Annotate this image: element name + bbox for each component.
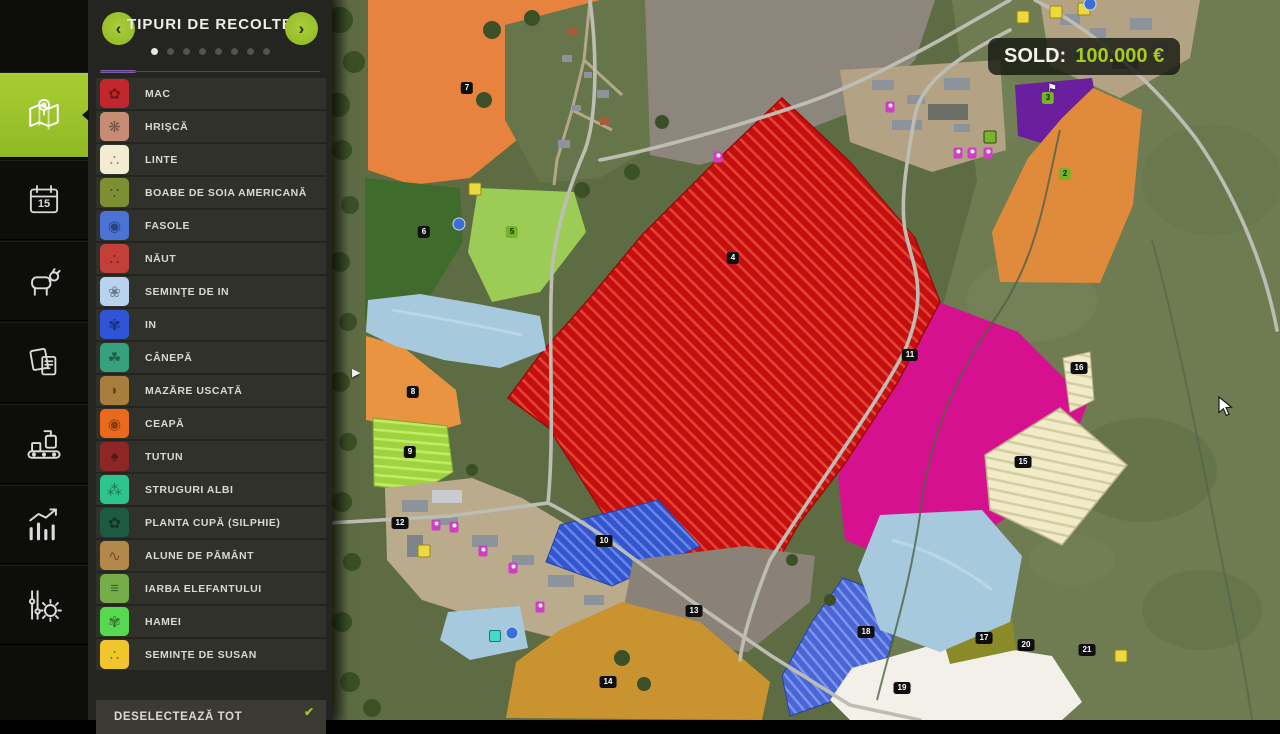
shop-marker-icon[interactable]: [1050, 6, 1063, 19]
crop-label: PLANTA CUPĂ (SILPHIE): [145, 517, 280, 529]
next-page-button[interactable]: ›: [285, 12, 318, 45]
shop-marker-icon[interactable]: [469, 183, 482, 196]
field-number-badge[interactable]: 6: [418, 226, 430, 238]
poi-marker-icon[interactable]: [453, 218, 466, 231]
crop-icon: ∵: [100, 178, 129, 207]
crop-label: FASOLE: [145, 220, 190, 232]
crop-label: SEMINŢE DE SUSAN: [145, 649, 257, 661]
crop-row[interactable]: ∴SEMINŢE DE SUSAN: [96, 639, 326, 670]
crop-icon: ∴: [100, 244, 129, 273]
person-marker-icon[interactable]: [450, 522, 459, 533]
pagination-dot[interactable]: [231, 48, 238, 55]
poi-marker-icon[interactable]: [489, 630, 501, 642]
crop-label: STRUGURI ALBI: [145, 484, 233, 496]
crop-label: IN: [145, 319, 157, 331]
pagination-dot[interactable]: [199, 48, 206, 55]
crop-row[interactable]: ≡IARBA ELEFANTULUI: [96, 573, 326, 604]
sidebar-item-animals[interactable]: [0, 241, 88, 321]
crop-row[interactable]: ✾HAMEI: [96, 606, 326, 637]
production-icon: [22, 422, 66, 466]
crop-icon: ≡: [100, 574, 129, 603]
sidebar-item-map[interactable]: [0, 72, 88, 158]
crop-types-panel: ‹ TIPURI DE RECOLTE › ✿MAC❋HRIŞCĂ∴LINTE∵…: [88, 0, 332, 720]
crop-row[interactable]: ♠TUTUN: [96, 441, 326, 472]
field-number-badge[interactable]: 11: [902, 349, 918, 361]
crop-label: CÂNEPĂ: [145, 352, 192, 364]
pagination-dot[interactable]: [263, 48, 270, 55]
panel-divider: [100, 71, 320, 72]
crop-icon: ✾: [100, 310, 129, 339]
map-overlay: 76548912101314112318191516172021⚑: [332, 0, 1280, 720]
crop-label: CEAPĂ: [145, 418, 184, 430]
person-marker-icon[interactable]: [432, 520, 441, 531]
field-number-badge[interactable]: 10: [596, 535, 613, 547]
deselect-all-button[interactable]: DESELECTEAZĂ TOT ✔: [96, 700, 326, 734]
crop-row[interactable]: ✿PLANTA CUPĂ (SILPHIE): [96, 507, 326, 538]
crop-label: SEMINŢE DE IN: [145, 286, 229, 298]
crop-row[interactable]: ∴NĂUT: [96, 243, 326, 274]
crop-list: ✿MAC❋HRIŞCĂ∴LINTE∵BOABE DE SOIA AMERICAN…: [96, 78, 326, 672]
field-number-badge[interactable]: 14: [600, 676, 617, 688]
shop-marker-icon[interactable]: [1115, 650, 1128, 663]
crop-row[interactable]: ⁂STRUGURI ALBI: [96, 474, 326, 505]
crop-row[interactable]: ◉CEAPĂ: [96, 408, 326, 439]
cow-icon: [22, 259, 66, 303]
field-number-badge[interactable]: 18: [858, 626, 875, 638]
field-number-badge[interactable]: 7: [461, 82, 473, 94]
sidebar-item-calendar[interactable]: 15: [0, 160, 88, 240]
balance-badge: SOLD: 100.000 €: [988, 38, 1180, 75]
crop-icon: ☘: [100, 343, 129, 372]
sidebar-item-contracts[interactable]: [0, 322, 88, 403]
crop-row[interactable]: ❋HRIŞCĂ: [96, 111, 326, 142]
person-marker-icon[interactable]: [536, 602, 545, 613]
pagination-dot[interactable]: [151, 48, 158, 55]
crop-row[interactable]: ◉FASOLE: [96, 210, 326, 241]
crop-row[interactable]: ✾IN: [96, 309, 326, 340]
field-number-badge[interactable]: 15: [1015, 456, 1032, 468]
shop-marker-icon[interactable]: [1017, 11, 1030, 24]
crop-icon: ❋: [100, 112, 129, 141]
field-number-badge[interactable]: 20: [1018, 639, 1035, 651]
person-marker-icon[interactable]: [968, 148, 977, 159]
crop-icon: ∿: [100, 541, 129, 570]
flag-icon[interactable]: ⚑: [1047, 82, 1057, 95]
panel-shadow: [332, 0, 348, 720]
field-number-badge[interactable]: 16: [1071, 362, 1088, 374]
field-number-badge[interactable]: 21: [1079, 644, 1096, 656]
field-number-badge[interactable]: 13: [686, 605, 703, 617]
sidebar-item-production[interactable]: [0, 404, 88, 484]
shop-marker-icon[interactable]: [418, 545, 431, 558]
pagination-dot[interactable]: [183, 48, 190, 55]
balance-label: SOLD:: [1004, 45, 1066, 68]
crop-label: MAZĂRE USCATĂ: [145, 385, 242, 397]
person-marker-icon[interactable]: [886, 102, 895, 113]
crop-label: ALUNE DE PĂMÂNT: [145, 550, 254, 562]
crop-row[interactable]: ☘CÂNEPĂ: [96, 342, 326, 373]
mouse-cursor: [1218, 396, 1234, 418]
stats-icon: [22, 503, 66, 547]
pagination-dot[interactable]: [167, 48, 174, 55]
crop-icon: ❀: [100, 277, 129, 306]
calendar-day: 15: [38, 198, 50, 210]
crop-label: LINTE: [145, 154, 178, 166]
field-number-badge[interactable]: 17: [976, 632, 993, 644]
field-number-badge[interactable]: 8: [407, 386, 419, 398]
crop-icon: ⁂: [100, 475, 129, 504]
crop-label: MAC: [145, 88, 170, 100]
person-marker-icon[interactable]: [479, 546, 488, 557]
crop-label: TUTUN: [145, 451, 183, 463]
crop-row[interactable]: ❀SEMINŢE DE IN: [96, 276, 326, 307]
crop-row[interactable]: ∿ALUNE DE PĂMÂNT: [96, 540, 326, 571]
poi-marker-icon[interactable]: [1084, 0, 1097, 11]
sidebar-item-settings[interactable]: [0, 565, 88, 645]
field-number-badge[interactable]: 9: [404, 446, 416, 458]
crop-icon: ✾: [100, 607, 129, 636]
person-marker-icon[interactable]: [954, 148, 963, 159]
person-marker-icon[interactable]: [984, 148, 993, 159]
crop-row[interactable]: ✿MAC: [96, 78, 326, 109]
sidebar: 15: [0, 0, 88, 720]
crop-label: HRIŞCĂ: [145, 121, 188, 133]
map-icon: [22, 93, 66, 137]
crop-icon: ✿: [100, 508, 129, 537]
crop-row[interactable]: ∵BOABE DE SOIA AMERICANĂ: [96, 177, 326, 208]
field-number-badge[interactable]: 2: [1059, 168, 1071, 180]
panel-collapse-arrow[interactable]: ▶: [352, 366, 360, 379]
field-number-badge[interactable]: 12: [392, 517, 409, 529]
map-view[interactable]: 76548912101314112318191516172021⚑ ▶: [332, 0, 1280, 720]
crop-icon: ◉: [100, 409, 129, 438]
sidebar-item-statistics[interactable]: [0, 485, 88, 564]
crop-row[interactable]: ∴LINTE: [96, 144, 326, 175]
crop-icon: ∴: [100, 640, 129, 669]
poi-marker-icon[interactable]: [506, 627, 519, 640]
field-number-badge[interactable]: 5: [506, 226, 518, 238]
crop-icon: ♠: [100, 442, 129, 471]
poi-marker-icon[interactable]: [984, 131, 997, 144]
person-marker-icon[interactable]: [714, 152, 723, 163]
deselect-all-label: DESELECTEAZĂ TOT: [114, 711, 242, 723]
pagination-dots: [88, 48, 332, 55]
person-marker-icon[interactable]: [509, 563, 518, 574]
field-number-badge[interactable]: 4: [727, 252, 739, 264]
pagination-dot[interactable]: [215, 48, 222, 55]
crop-icon: ✿: [100, 79, 129, 108]
crop-icon: ◉: [100, 211, 129, 240]
crop-label: NĂUT: [145, 253, 176, 265]
settings-icon: [22, 583, 66, 627]
crop-icon: ∴: [100, 145, 129, 174]
crop-row[interactable]: ◗MAZĂRE USCATĂ: [96, 375, 326, 406]
deselect-check-icon: ✔: [304, 705, 314, 719]
pagination-dot[interactable]: [247, 48, 254, 55]
field-number-badge[interactable]: 19: [894, 682, 911, 694]
panel-header: ‹ TIPURI DE RECOLTE ›: [88, 0, 332, 48]
crop-icon: ◗: [100, 376, 129, 405]
balance-value: 100.000 €: [1075, 45, 1164, 68]
crop-label: HAMEI: [145, 616, 181, 628]
crop-label: BOABE DE SOIA AMERICANĂ: [145, 187, 307, 199]
crop-label: IARBA ELEFANTULUI: [145, 583, 262, 595]
documents-icon: [23, 342, 65, 384]
